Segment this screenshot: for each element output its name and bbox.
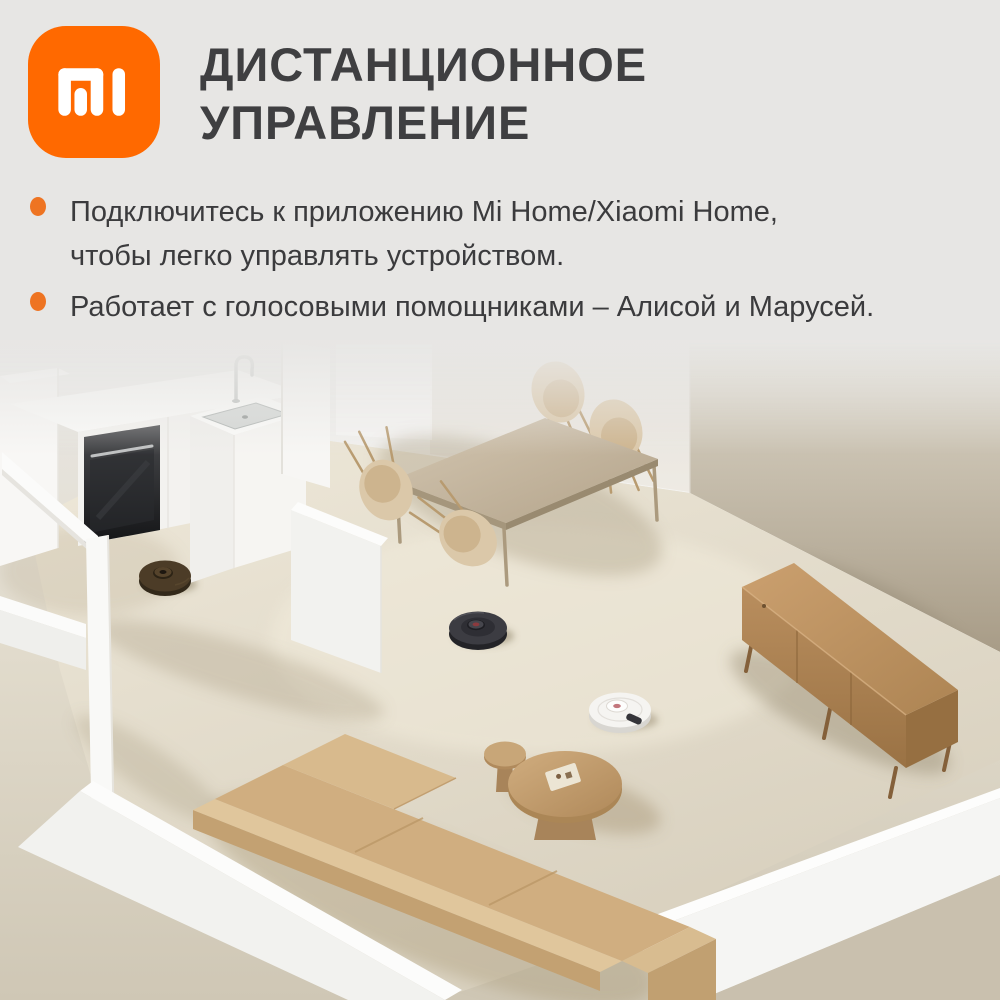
mi-logo [28,26,160,158]
feature-item-app: Подключитесь к приложению Mi Home/Xiaomi… [30,190,970,278]
title-line-2: УПРАВЛЕНИЕ [200,94,960,152]
feature-voice-line1: Работает с голосовыми помощниками – Алис… [70,285,970,329]
bullet-dot-icon [30,292,46,311]
apartment-render [0,340,1000,1000]
feature-app-line1: Подключитесь к приложению Mi Home/Xiaomi… [70,190,970,234]
robot-vacuum-white [589,693,651,734]
robot-vacuum-bronze [139,561,191,597]
feature-item-app-text: Подключитесь к приложению Mi Home/Xiaomi… [70,190,970,278]
mi-logo-glyph [28,26,160,158]
feature-item-voice: Работает с голосовыми помощниками – Алис… [30,285,970,329]
tv-stand-knob [762,604,766,608]
bullet-dot-icon [30,197,46,216]
feature-item-voice-text: Работает с голосовыми помощниками – Алис… [70,285,970,329]
title-line-1: ДИСТАНЦИОННОЕ [200,36,960,94]
feature-app-line2: чтобы легко управлять устройством. [70,234,970,278]
robot-vacuum-black [449,612,507,651]
page-title: ДИСТАНЦИОННОЕ УПРАВЛЕНИЕ [200,36,960,152]
promo-card: ДИСТАНЦИОННОЕ УПРАВЛЕНИЕ Подключитесь к … [0,0,1000,1000]
top-fade [0,340,1000,455]
